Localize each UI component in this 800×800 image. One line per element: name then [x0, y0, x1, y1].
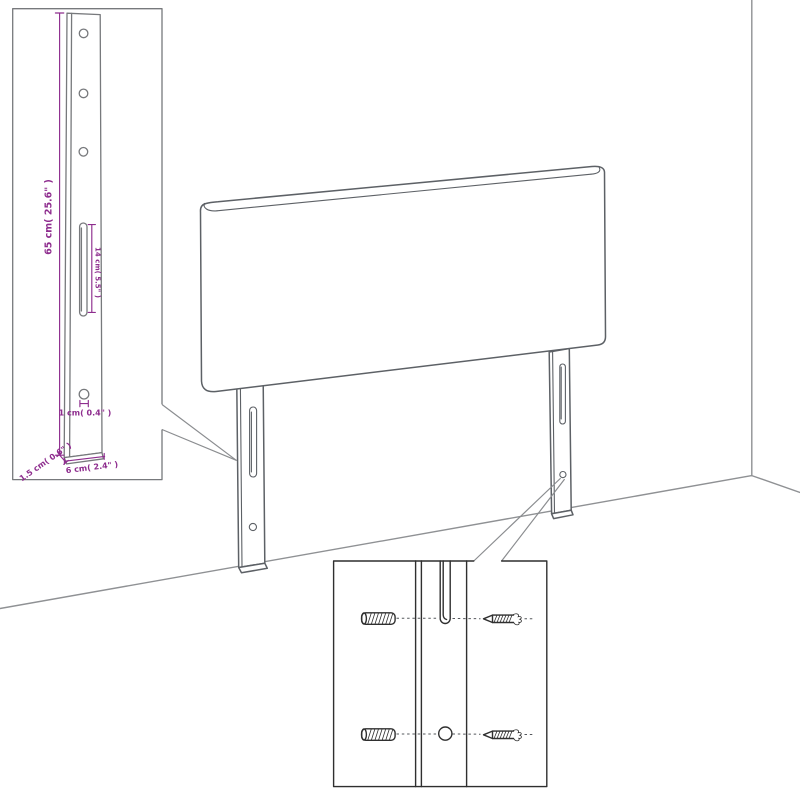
panel-face: [200, 166, 605, 391]
dimension-label-hole: 1 cm( 0.4" ): [59, 409, 112, 418]
floor-line-right: [752, 476, 800, 493]
headboard-leg-left: [237, 382, 267, 573]
callout-line: [162, 430, 236, 461]
dimension-label-height: 65 cm( 25.6" ): [44, 179, 55, 255]
headboard-dimension-diagram: 65 cm( 25.6" ) 14 cm( 5.5" ) 1 cm( 0.4" …: [0, 0, 800, 800]
dimension-label-slot: 14 cm( 5.5" ): [94, 247, 102, 298]
callout-line: [474, 479, 561, 562]
headboard-leg-right: [549, 349, 573, 519]
callout-wedge-left: [162, 405, 236, 461]
callout-line: [162, 405, 236, 461]
callout-line: [502, 480, 565, 562]
inset-mounting-detail: [334, 561, 547, 787]
inset-leg-dimensions: 65 cm( 25.6" ) 14 cm( 5.5" ) 1 cm( 0.4" …: [13, 9, 162, 484]
leg-front-view: [64, 13, 103, 464]
product-diagram-page: 65 cm( 25.6" ) 14 cm( 5.5" ) 1 cm( 0.4" …: [0, 0, 800, 800]
headboard-panel: [200, 166, 605, 391]
